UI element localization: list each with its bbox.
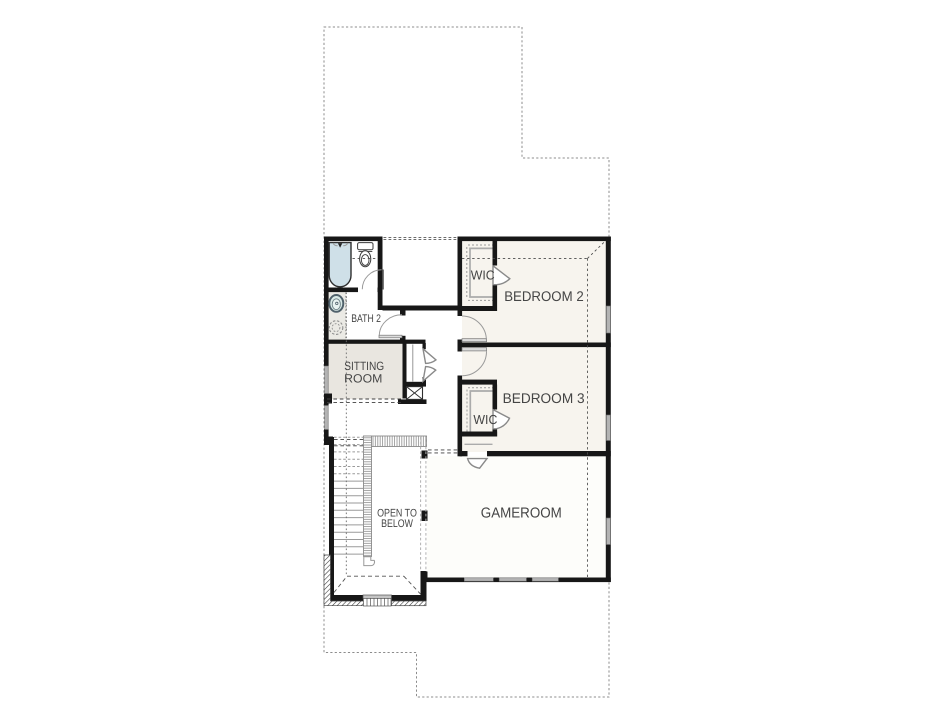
svg-text:BEDROOM 3: BEDROOM 3 <box>503 390 585 406</box>
svg-text:BEDROOM 2: BEDROOM 2 <box>504 288 584 304</box>
svg-text:SITTING: SITTING <box>344 359 384 373</box>
svg-text:WIC: WIC <box>471 268 495 283</box>
svg-text:GAMEROOM: GAMEROOM <box>481 505 562 521</box>
svg-text:ROOM: ROOM <box>344 372 382 386</box>
svg-text:BATH 2: BATH 2 <box>351 313 381 325</box>
svg-text:WIC: WIC <box>473 412 497 427</box>
svg-text:BELOW: BELOW <box>381 518 413 530</box>
